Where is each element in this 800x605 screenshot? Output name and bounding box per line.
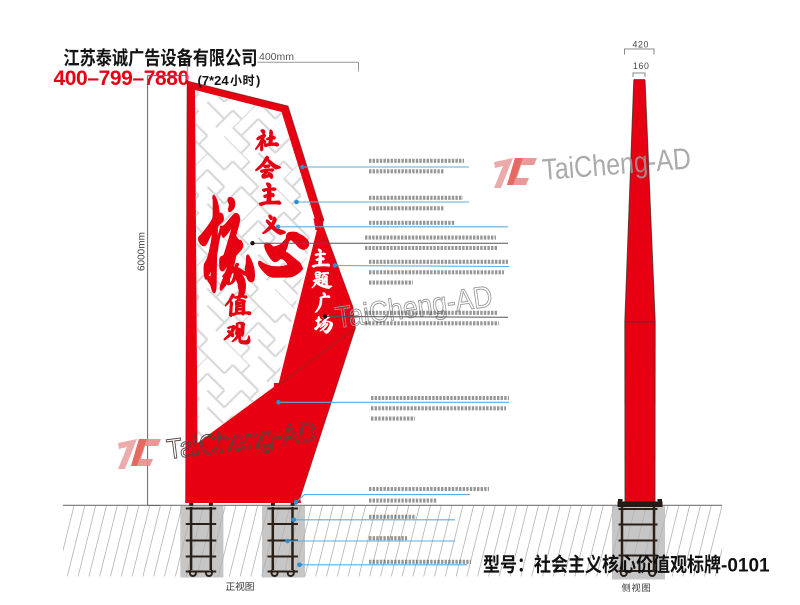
svg-text:420: 420: [633, 40, 649, 50]
svg-text:400–799–7880: 400–799–7880: [54, 67, 189, 90]
svg-text:400mm: 400mm: [259, 51, 294, 63]
svg-text:(7*24: (7*24: [198, 73, 230, 88]
svg-text:-0101: -0101: [721, 556, 770, 577]
svg-text:): ): [256, 73, 260, 88]
svg-text:6000mm: 6000mm: [137, 232, 148, 271]
svg-text:160: 160: [633, 61, 649, 71]
